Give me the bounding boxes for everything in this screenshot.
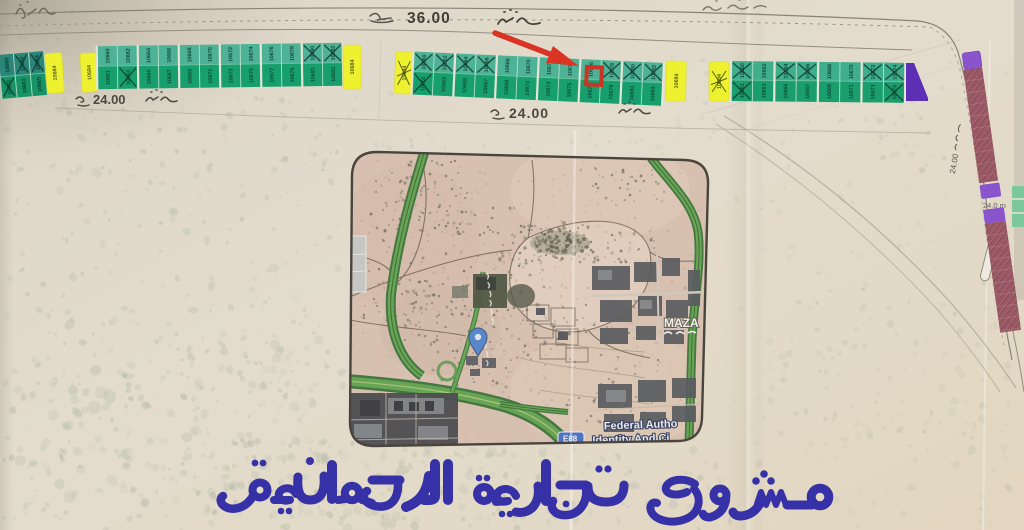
svg-text:10662: 10662 (762, 63, 768, 78)
svg-text:10670: 10670 (208, 47, 214, 62)
svg-text:10661: 10661 (106, 70, 112, 85)
svg-text:10669: 10669 (827, 84, 833, 99)
svg-text:10672: 10672 (228, 47, 234, 62)
svg-text:10667: 10667 (805, 84, 811, 99)
svg-text:10673: 10673 (228, 68, 234, 83)
svg-text:10660: 10660 (421, 54, 428, 69)
svg-text:10681: 10681 (629, 85, 636, 100)
svg-text:10669: 10669 (504, 80, 511, 95)
svg-text:10662: 10662 (126, 48, 132, 63)
svg-text:10675: 10675 (249, 68, 255, 83)
svg-text:10679: 10679 (608, 84, 615, 99)
svg-text:10660: 10660 (105, 49, 111, 64)
svg-text:10671: 10671 (208, 69, 214, 84)
svg-text:10673: 10673 (546, 82, 553, 97)
svg-text:10668: 10668 (827, 64, 833, 79)
svg-text:10666: 10666 (484, 57, 491, 72)
svg-text:10671: 10671 (849, 84, 855, 99)
svg-text:10684: 10684 (350, 60, 356, 75)
svg-text:10681: 10681 (310, 67, 316, 82)
svg-text:10676: 10676 (588, 62, 595, 77)
svg-text:10678: 10678 (290, 46, 296, 61)
svg-text:10665: 10665 (146, 69, 152, 84)
svg-text:24.0 m: 24.0 m (983, 201, 1006, 210)
svg-text:10668: 10668 (187, 47, 193, 62)
svg-text:10667: 10667 (483, 79, 490, 94)
svg-text:10683: 10683 (650, 86, 657, 101)
svg-text:10666: 10666 (167, 48, 173, 63)
svg-text:10676: 10676 (269, 46, 275, 61)
svg-text:10670: 10670 (849, 64, 855, 79)
svg-text:10667: 10667 (167, 69, 173, 84)
svg-text:10663: 10663 (126, 70, 132, 85)
svg-text:10670: 10670 (526, 59, 533, 74)
svg-text:10683: 10683 (331, 67, 337, 82)
svg-text:10679: 10679 (290, 67, 296, 82)
svg-text:10677: 10677 (269, 68, 275, 83)
svg-text:10669: 10669 (187, 69, 193, 84)
svg-text:24.00: 24.00 (93, 92, 126, 107)
svg-text:10675: 10675 (567, 83, 574, 98)
svg-text:10684: 10684 (87, 65, 94, 80)
svg-text:10668: 10668 (505, 58, 512, 73)
svg-text:10664: 10664 (463, 56, 470, 71)
svg-text:10663: 10663 (441, 77, 448, 92)
svg-text:10674: 10674 (249, 47, 255, 62)
svg-text:24.00: 24.00 (509, 105, 549, 121)
svg-text:10684: 10684 (674, 73, 680, 88)
svg-text:10665: 10665 (462, 78, 469, 93)
svg-text:36.00: 36.00 (407, 10, 451, 27)
svg-text:10673: 10673 (871, 84, 877, 99)
svg-text:10662: 10662 (442, 55, 449, 70)
svg-text:10663: 10663 (762, 83, 768, 98)
svg-text:10665: 10665 (783, 84, 789, 99)
svg-text:10671: 10671 (525, 81, 532, 96)
svg-text:10664: 10664 (146, 48, 152, 63)
svg-text:10684: 10684 (52, 65, 59, 80)
